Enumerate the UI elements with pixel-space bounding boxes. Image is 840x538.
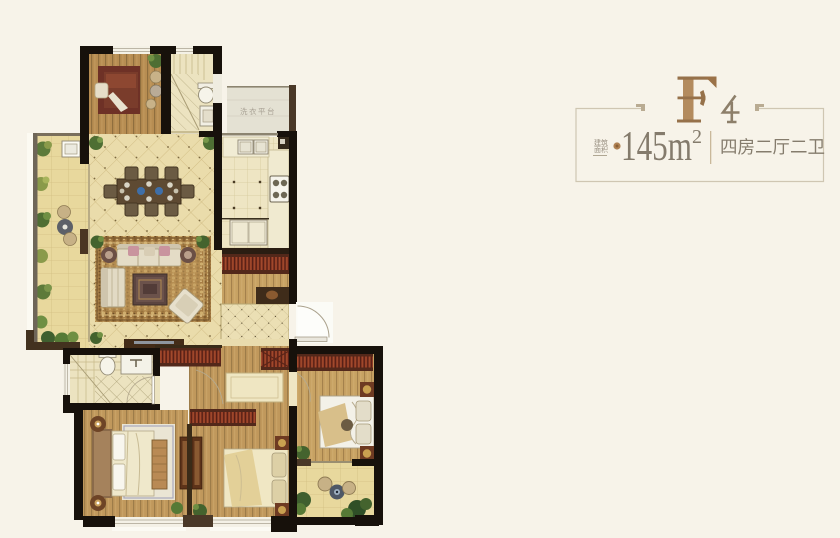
- svg-text:洗衣平台: 洗衣平台: [240, 106, 276, 116]
- svg-text:面积: 面积: [594, 145, 608, 154]
- svg-text:四房二厅二卫: 四房二厅二卫: [720, 137, 825, 157]
- svg-text:145m: 145m: [621, 124, 692, 170]
- svg-text:2: 2: [692, 126, 702, 148]
